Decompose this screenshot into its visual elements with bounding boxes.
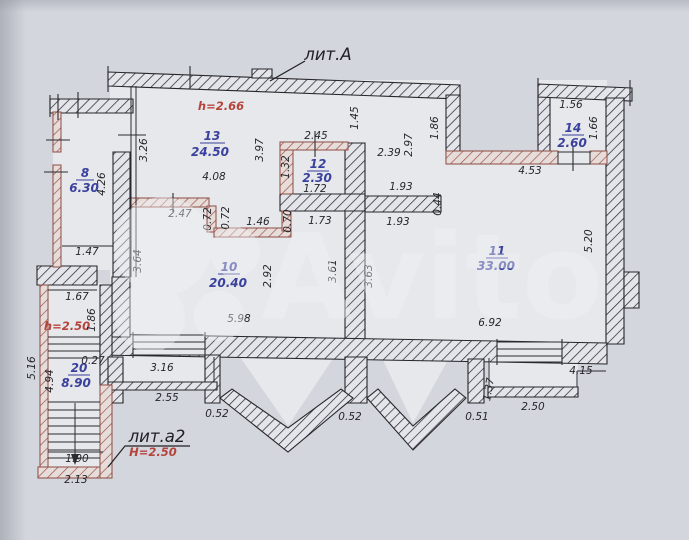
- wall-room14-door-side: [590, 151, 607, 164]
- wall-room8-west-lower: [53, 165, 61, 267]
- dim-label: 5.16: [26, 356, 38, 380]
- dim-label: 1.66: [588, 116, 600, 140]
- avito-logo-circle: [115, 282, 185, 352]
- dim-label: 2.97: [403, 133, 415, 157]
- floor-plan-drawing: лит.А лит.а2 h=2.66 h=2.50 Н=2.50 8 6.30…: [0, 0, 689, 540]
- avito-logo-circle: [194, 291, 244, 341]
- avito-watermark-text: Avito: [261, 208, 603, 346]
- dim-label: 1.45: [349, 106, 361, 130]
- porch-se-bottom: [488, 387, 578, 397]
- room-area: 24.50: [191, 145, 229, 159]
- page-edge-shadow-left: [0, 0, 26, 540]
- dim-label: 2.50: [521, 401, 545, 413]
- dim-label: 4.94: [44, 369, 56, 392]
- dim-label: 1.47: [75, 246, 99, 258]
- dim-label: 3.97: [254, 138, 266, 162]
- room-number: 8: [81, 166, 89, 180]
- wall-room8-top: [50, 99, 133, 113]
- annex-label: лит.а2: [128, 427, 186, 446]
- dim-label: 4.53: [518, 165, 541, 177]
- dim-label: 0.72: [220, 206, 232, 230]
- room-area: 2.60: [557, 136, 587, 150]
- room-number: 12: [310, 157, 327, 171]
- building-notch-outside: [460, 76, 538, 152]
- wall-453-band: [446, 151, 558, 164]
- dim-label: 1.93: [389, 181, 412, 193]
- dim-label: 1.67: [65, 291, 89, 303]
- wall-east-step: [624, 272, 639, 308]
- dim-label: 0.51: [465, 411, 488, 423]
- wall-east: [606, 98, 624, 344]
- dim-label: 0.27: [81, 355, 105, 367]
- room-number: 13: [204, 129, 221, 143]
- wall-room8-west-upper: [53, 112, 61, 152]
- ceiling-height-annex-upper: h=2.50: [44, 319, 90, 333]
- ceiling-height-main: h=2.66: [198, 99, 244, 113]
- wall-room12-top: [280, 142, 348, 150]
- dim-label: 3.16: [150, 362, 174, 374]
- ceiling-height-annex: Н=2.50: [129, 445, 177, 459]
- dim-label: 2.45: [304, 130, 328, 142]
- building-label: лит.А: [303, 45, 351, 64]
- room-area: 20.40: [209, 276, 247, 290]
- dim-label: 2.13: [64, 474, 87, 486]
- avito-logo-circle: [210, 227, 260, 277]
- avito-logo-circle: [114, 197, 212, 295]
- wall-top-tab: [252, 69, 272, 78]
- dim-label: 1.86: [429, 116, 441, 140]
- door-room14: [558, 152, 590, 164]
- dim-label: 4.08: [202, 171, 226, 183]
- dim-label: 1.86: [86, 308, 98, 332]
- dim-label: 2.39: [377, 147, 401, 159]
- dim-label: 0.52: [205, 408, 229, 420]
- dim-label: 3.26: [138, 138, 150, 162]
- wall-annex-top: [37, 266, 97, 285]
- dim-label: 1.72: [303, 183, 327, 195]
- dim-label: 4.15: [569, 365, 593, 377]
- dim-label: 1.32: [280, 155, 292, 179]
- dim-label: 4.26: [96, 172, 108, 196]
- wall-room14-left: [538, 97, 550, 154]
- dim-label: 1.56: [559, 99, 583, 111]
- porch-sw-bottom: [108, 382, 217, 390]
- dim-label: 2.55: [155, 392, 179, 404]
- wall-room12-right: [345, 143, 365, 194]
- room-area: 6.30: [69, 181, 99, 195]
- page-edge-shadow-top: [0, 0, 689, 12]
- bay-stub-left: [205, 355, 220, 403]
- scanned-floor-plan-page: лит.А лит.а2 h=2.66 h=2.50 Н=2.50 8 6.30…: [0, 0, 689, 540]
- wall-notch-vertical: [446, 95, 460, 160]
- dim-label: 1.90: [65, 453, 89, 465]
- room-area: 8.90: [61, 376, 91, 390]
- room-number: 14: [565, 121, 582, 135]
- dim-label: 0.52: [338, 411, 362, 423]
